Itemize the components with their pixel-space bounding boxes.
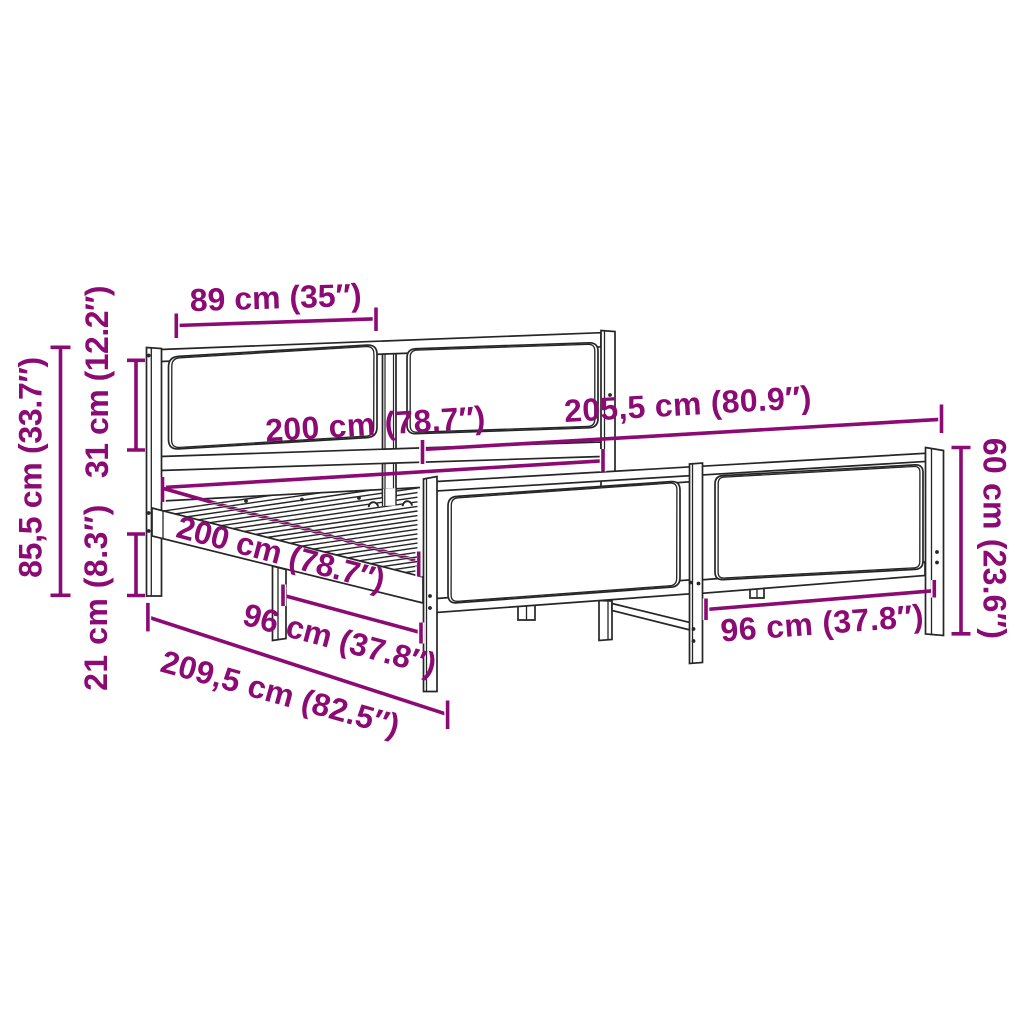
svg-text:60 cm (23.6″): 60 cm (23.6″): [977, 438, 1013, 639]
svg-text:21 cm (8.3″): 21 cm (8.3″): [78, 504, 114, 691]
svg-text:31 cm (12.2″): 31 cm (12.2″): [79, 286, 115, 478]
svg-text:89 cm (35″): 89 cm (35″): [189, 277, 362, 318]
svg-text:85,5 cm (33.7″): 85,5 cm (33.7″): [13, 357, 49, 578]
